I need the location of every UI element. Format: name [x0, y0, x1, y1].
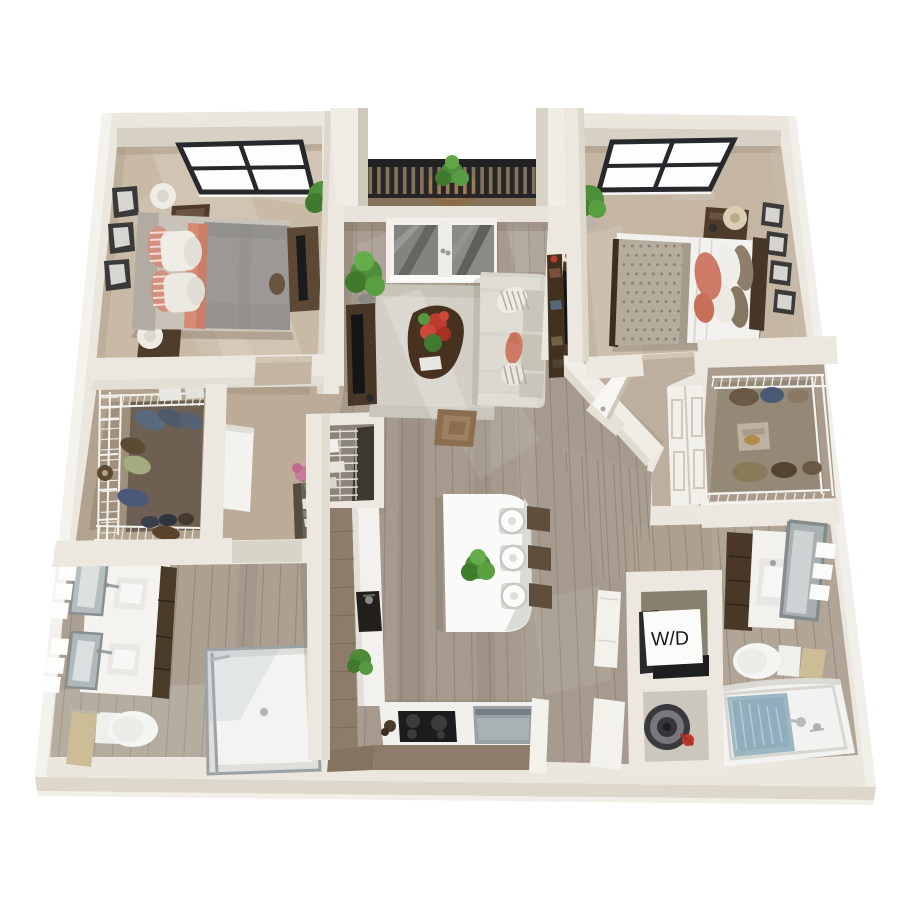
svg-text:W/D: W/D — [651, 627, 690, 650]
